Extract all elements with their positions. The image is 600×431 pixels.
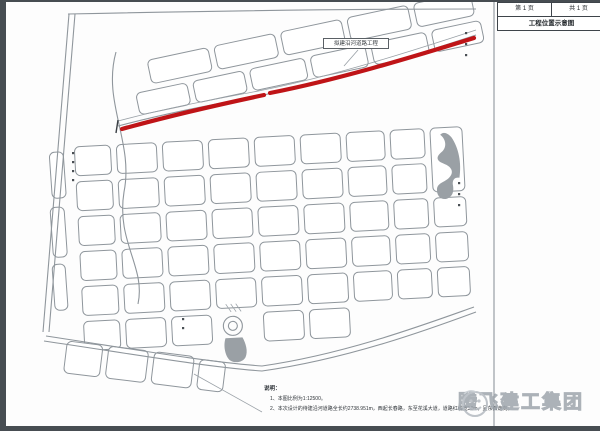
tengfei-logo-icon bbox=[458, 386, 492, 420]
note-leader-line bbox=[194, 374, 262, 412]
drawing-sheet: 第 1 页 共 1 页 工程位置示意图 拟建沿河道路工程 说明： 1、本图比例为… bbox=[0, 0, 600, 431]
plaza-roundabout bbox=[222, 303, 247, 363]
site-plan-drawing bbox=[6, 2, 600, 426]
road-start-tick bbox=[116, 120, 118, 133]
watermark: 腾飞建工集团 bbox=[458, 386, 584, 420]
total-pages-cell: 共 1 页 bbox=[552, 3, 600, 16]
proposed-road-label: 拟建沿河道路工程 bbox=[323, 38, 389, 49]
drawing-title: 工程位置示意图 bbox=[498, 17, 600, 30]
page-number-cell: 第 1 页 bbox=[498, 3, 552, 16]
left-edge-blocks bbox=[44, 152, 74, 311]
upper-blocks bbox=[129, 2, 484, 115]
title-block: 第 1 页 共 1 页 工程位置示意图 bbox=[497, 2, 600, 31]
bottom-left-blocks bbox=[63, 341, 226, 392]
